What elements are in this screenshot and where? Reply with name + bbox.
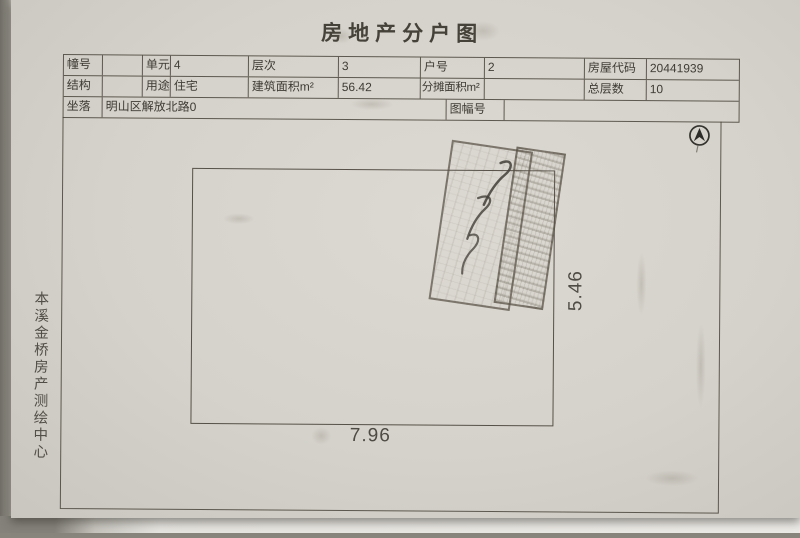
house-code-value: 20441939 — [646, 59, 739, 80]
smudge — [636, 252, 646, 316]
room-no-label: 户号 — [420, 57, 484, 77]
smudge — [330, 28, 352, 44]
property-info-table: 幢号 单元 4 层次 3 户号 2 房屋代码 20441939 结构 用途 住宅… — [63, 54, 740, 123]
total-floors-value: 10 — [646, 80, 739, 101]
total-floors-label: 总层数 — [584, 80, 646, 100]
unit-label: 单元 — [142, 56, 170, 76]
surveyor-caption: 本溪金桥房产测绘中心 — [29, 291, 51, 461]
room-no-value: 2 — [484, 58, 584, 79]
document-photo: 房地产分户图 幢号 单元 4 层次 3 户号 2 房屋代码 20441939 结… — [0, 0, 800, 533]
smudge — [645, 470, 699, 486]
location-value: 明山区解放北路0 — [102, 97, 446, 119]
width-dimension-label: 7.96 — [325, 425, 415, 448]
height-dimension-label: 5.46 — [565, 255, 588, 327]
document-content: 房地产分户图 幢号 单元 4 层次 3 户号 2 房屋代码 20441939 结… — [0, 0, 800, 538]
usage-value: 住宅 — [170, 77, 248, 98]
location-label: 坐落 — [64, 97, 102, 117]
shared-area-value — [484, 79, 584, 100]
building-no-value — [102, 55, 142, 75]
smudge — [223, 213, 255, 224]
structure-label: 结构 — [64, 76, 102, 96]
floor-level-value: 3 — [338, 57, 420, 78]
smudge — [466, 21, 500, 41]
map-sheet-label: 图幅号 — [446, 100, 504, 120]
unit-value: 4 — [170, 56, 248, 77]
smudge — [311, 427, 331, 445]
page-title: 房地产分户图 — [0, 15, 800, 51]
shared-area-label: 分摊面积m² — [420, 78, 484, 98]
building-no-label: 幢号 — [64, 55, 102, 75]
floor-level-label: 层次 — [248, 56, 338, 77]
smudge — [696, 322, 707, 408]
smudge — [350, 98, 394, 110]
house-code-label: 房屋代码 — [584, 59, 646, 79]
structure-value — [102, 76, 142, 96]
usage-label: 用途 — [142, 77, 170, 97]
floor-area-value: 56.42 — [338, 78, 420, 99]
north-arrow-icon — [686, 122, 712, 154]
floor-area-label: 建筑面积m² — [248, 77, 338, 98]
map-sheet-value — [504, 100, 739, 122]
